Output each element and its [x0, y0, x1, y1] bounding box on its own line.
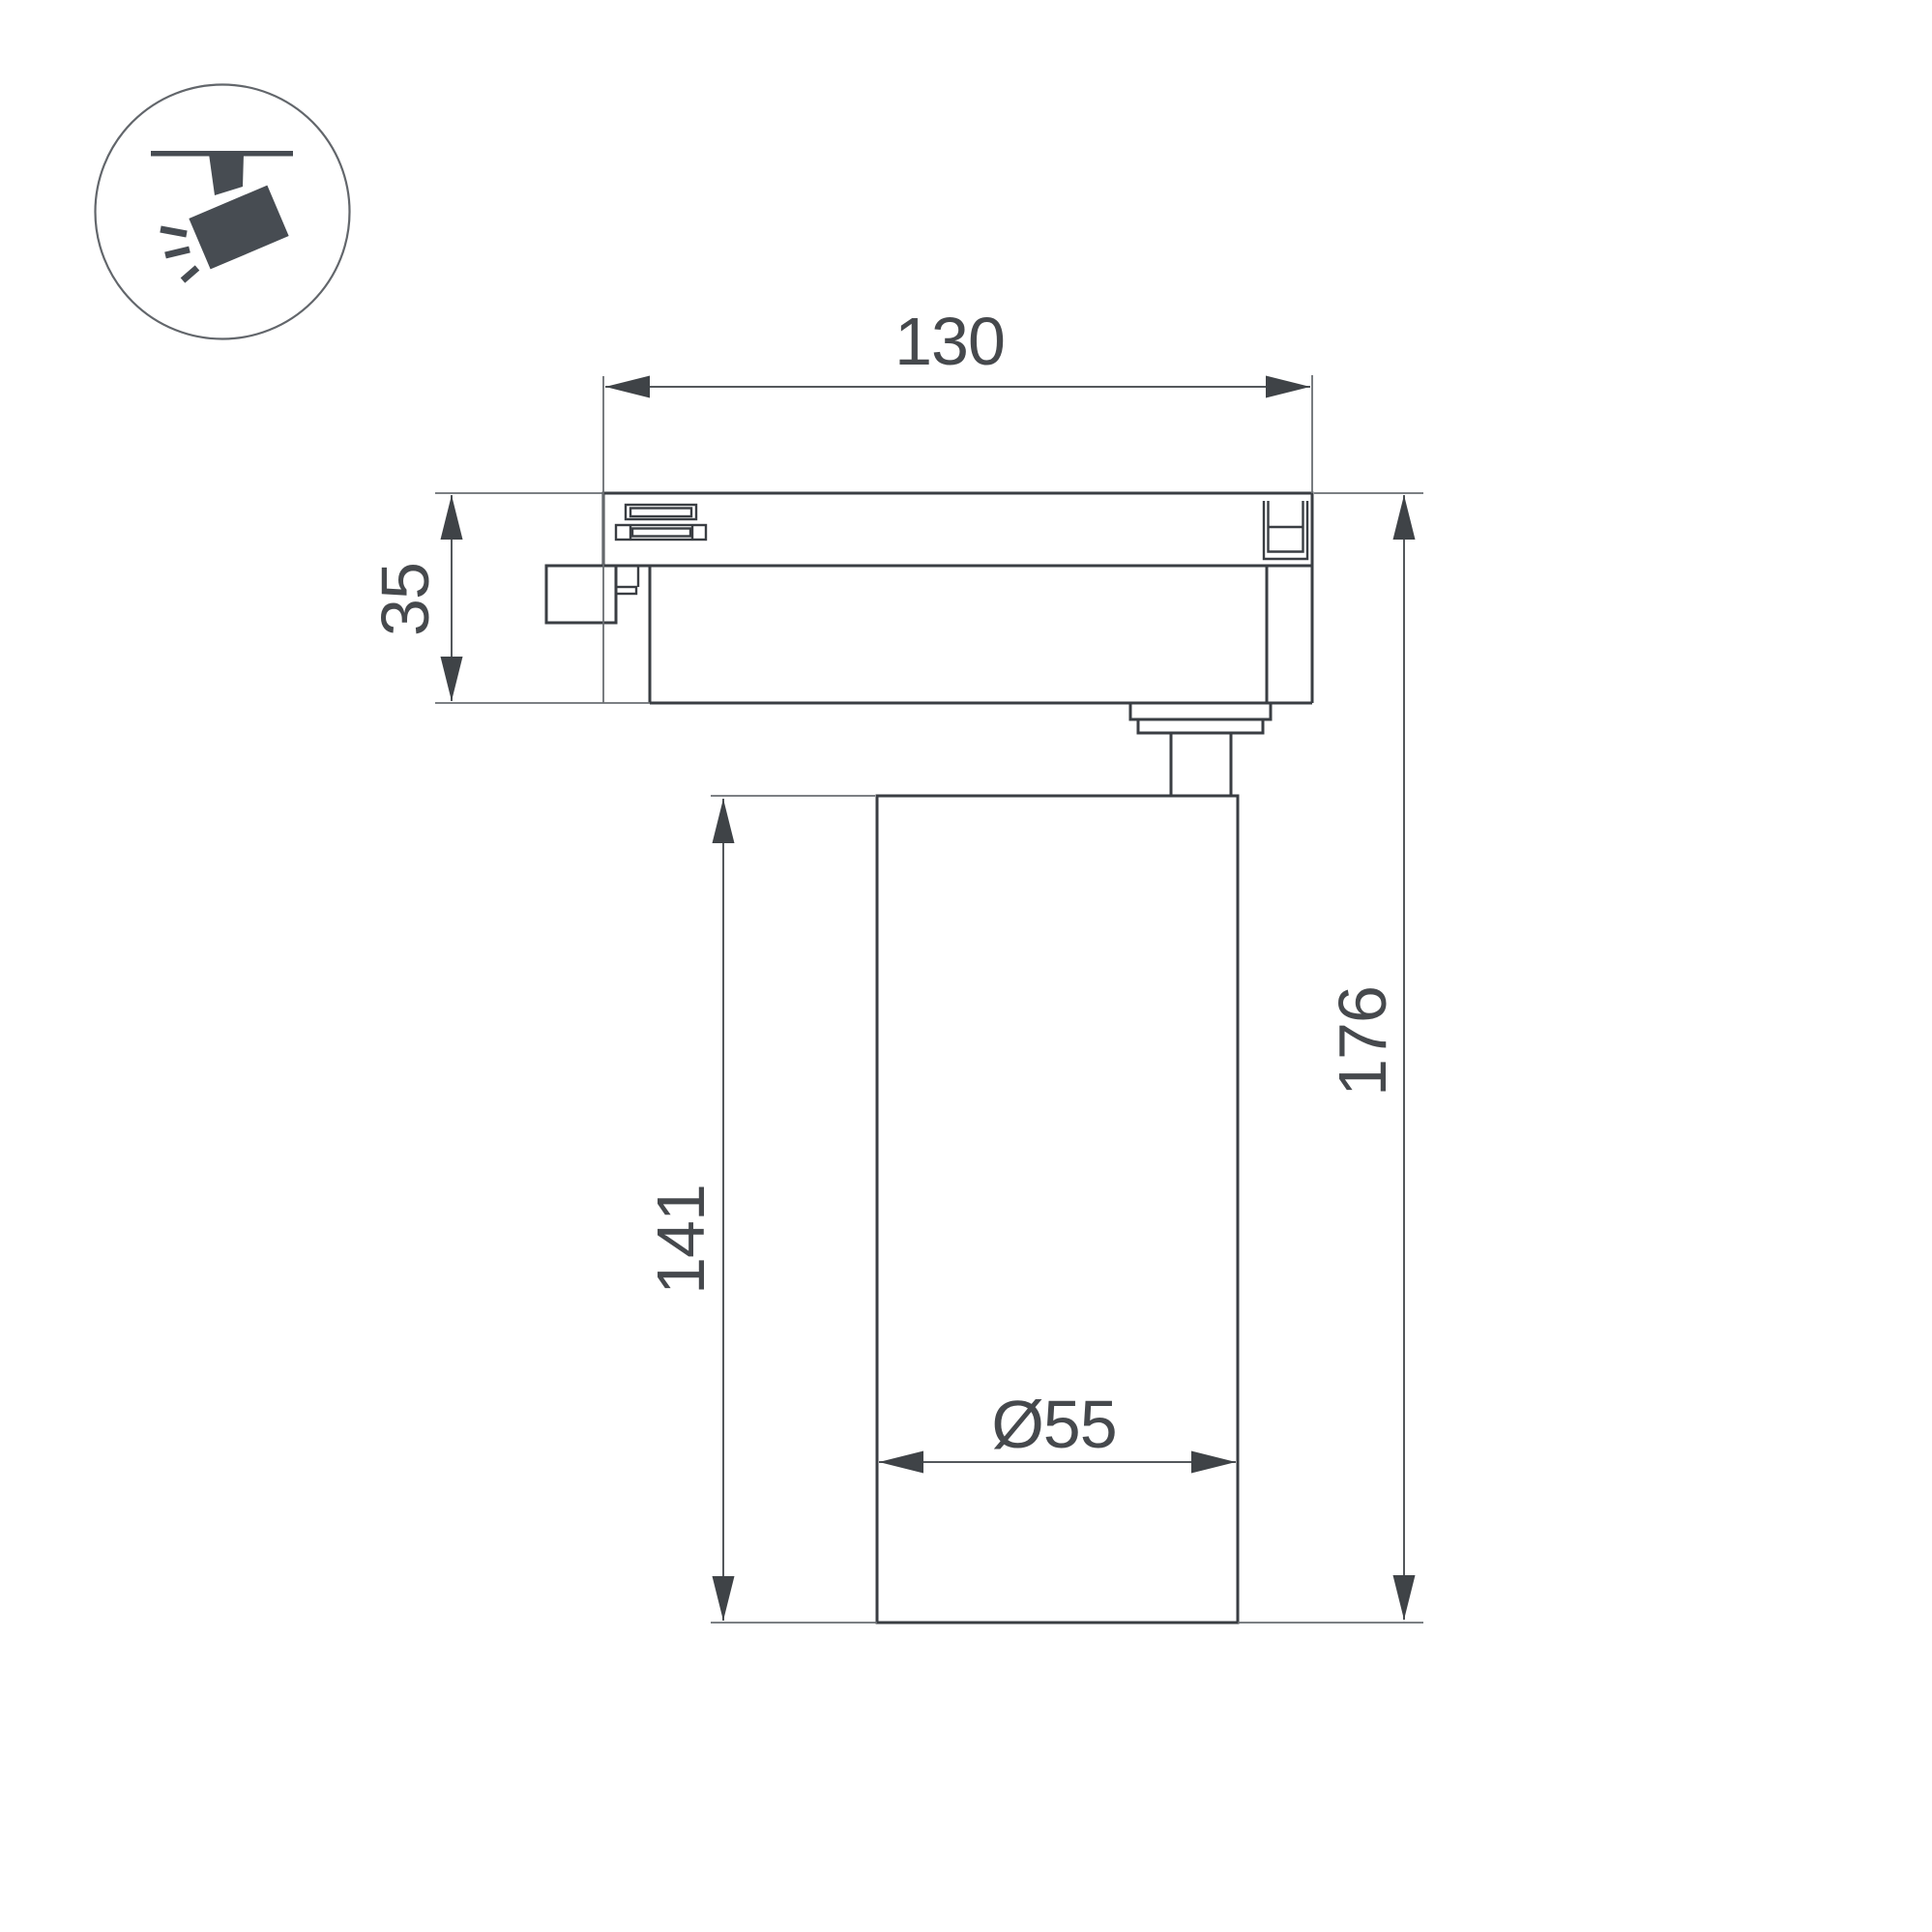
- dim-track-width: 130: [603, 304, 1312, 703]
- adapter-lower-housing: [650, 566, 1312, 703]
- lever-box: [546, 566, 616, 623]
- adapter-top-section: [603, 493, 1312, 566]
- drawing-page: 130 35 141 176: [0, 0, 1932, 1932]
- arrowhead-left: [879, 1451, 923, 1474]
- arrowhead-bottom: [713, 1576, 735, 1621]
- dim-body-diameter: Ø55: [879, 1387, 1236, 1474]
- lamp-cylinder: [877, 796, 1238, 1623]
- arrowhead-top: [713, 799, 735, 843]
- arrowhead-bottom: [441, 657, 463, 701]
- dim-label-body-diameter: Ø55: [991, 1387, 1116, 1462]
- adapter-right-latch: [1264, 501, 1307, 559]
- arrowhead-bottom: [1393, 1575, 1416, 1620]
- arrowhead-top: [441, 495, 463, 540]
- arrowhead-right: [1191, 1451, 1236, 1474]
- adapter-contact-clips: [616, 505, 706, 540]
- lever-notch-bar: [616, 587, 636, 594]
- dimension-drawing: 130 35 141 176: [0, 0, 1932, 1932]
- locking-lever: [546, 566, 638, 623]
- arrowhead-top: [1393, 495, 1416, 540]
- dim-label-track-width: 130: [894, 304, 1005, 379]
- joint-step-lower: [1138, 719, 1263, 733]
- arrowhead-left: [605, 376, 650, 398]
- clip-lower-inner: [632, 529, 690, 537]
- dim-adapter-height: 35: [367, 493, 650, 703]
- joint-step-upper: [1130, 703, 1271, 719]
- arrowhead-right: [1266, 376, 1310, 398]
- dim-label-body-height: 141: [643, 1185, 718, 1295]
- latch-outer: [1264, 501, 1307, 559]
- dim-label-total-height: 176: [1325, 986, 1400, 1097]
- clip-upper-inner: [630, 509, 691, 517]
- swivel-joint: [1130, 703, 1271, 796]
- dim-label-adapter-height: 35: [367, 563, 443, 636]
- product-icon: [96, 85, 350, 339]
- joint-stem: [1171, 733, 1231, 796]
- dim-body-height: 141: [643, 796, 877, 1623]
